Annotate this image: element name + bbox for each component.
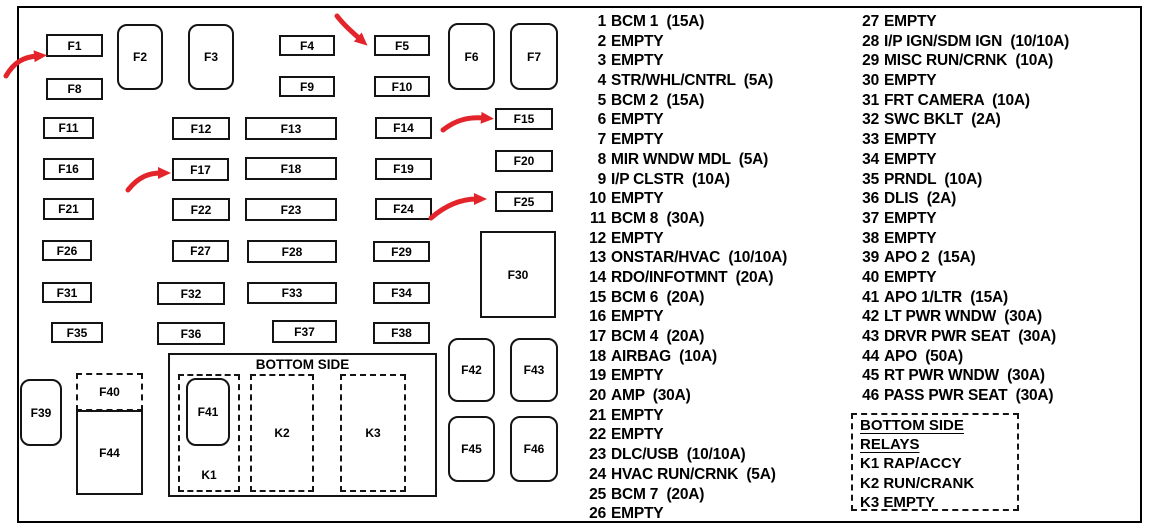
fuse-label: F24 [393,202,414,216]
legend-item-text: EMPTY [611,504,663,524]
fuse-label: F32 [181,287,202,301]
fuse-box-f26: F26 [42,240,92,261]
legend-item-number: 8 [584,150,606,170]
legend-item-text: EMPTY [884,209,936,229]
fuse-box-f45: F45 [448,416,495,482]
fuse-label: F5 [395,39,409,53]
legend-item: 8MIR WNDW MDL (5A) [584,150,787,170]
legend-item: 27EMPTY [854,12,1069,32]
fuse-box-f4: F4 [279,35,335,56]
fuse-box-f33: F33 [247,282,337,304]
fuse-box-f17: F17 [172,158,229,181]
legend-item-number: 7 [584,130,606,150]
fuse-box-f15: F15 [495,108,553,130]
legend-item-text: DRVR PWR SEAT (30A) [884,327,1056,347]
legend-item-text: DLIS (2A) [884,189,956,209]
legend-item-number: 29 [854,51,879,71]
legend-item-text: APO (50A) [884,347,963,367]
fuse-label: F33 [282,286,303,300]
legend-item-text: EMPTY [611,307,663,327]
legend-item-number: 43 [854,327,879,347]
legend-item-text: AIRBAG (10A) [611,347,717,367]
legend-item-text: EMPTY [884,268,936,288]
legend-item-number: 1 [584,12,606,32]
legend-item: 29MISC RUN/CRNK (10A) [854,51,1069,71]
fuse-label: F1 [67,39,81,53]
fuse-box-f18: F18 [245,157,337,180]
fuse-label: F21 [58,202,79,216]
legend-item-number: 18 [584,347,606,367]
legend-item-text: LT PWR WNDW (30A) [884,307,1042,327]
legend-item-text: PASS PWR SEAT (30A) [884,386,1053,406]
fuse-box-f7: F7 [510,23,558,90]
legend-item-number: 27 [854,12,879,32]
legend-item-text: EMPTY [611,189,663,209]
legend-item-number: 20 [584,386,606,406]
relay-legend-box: BOTTOM SIDERELAYSK1 RAP/ACCYK2 RUN/CRANK… [851,413,1019,511]
legend-item-number: 9 [584,170,606,190]
legend-item-number: 33 [854,130,879,150]
legend-item-number: 42 [854,307,879,327]
fuse-label: F9 [300,80,314,94]
legend-item-text: EMPTY [611,110,663,130]
fuse-label: F37 [294,325,315,339]
legend-item: 38EMPTY [854,229,1069,249]
legend-item-number: 6 [584,110,606,130]
legend-item-text: EMPTY [611,32,663,52]
legend-item-number: 40 [854,268,879,288]
legend-item: 13ONSTAR/HVAC (10/10A) [584,248,787,268]
legend-item-text: PRNDL (10A) [884,170,982,190]
legend-item: 18AIRBAG (10A) [584,347,787,367]
fuse-label: F43 [524,363,545,377]
legend-item-text: EMPTY [611,130,663,150]
fuse-box-f46: F46 [510,416,558,482]
fuse-box-f39: F39 [20,379,62,446]
legend-item-text: APO 1/LTR (15A) [884,288,1008,308]
legend-item-text: ONSTAR/HVAC (10/10A) [611,248,787,268]
legend-item: 12EMPTY [584,229,787,249]
relay-box-title: RELAYS [860,435,1017,454]
legend-item-text: SWC BKLT (2A) [884,110,1001,130]
relay-box-k3: K3 [340,374,406,492]
fuse-box-f20: F20 [495,150,553,172]
fuse-label: F36 [181,327,202,341]
legend-item: 45RT PWR WNDW (30A) [854,366,1069,386]
fuse-box-f16: F16 [43,158,94,180]
fuse-label: F44 [99,446,120,460]
legend-item-number: 16 [584,307,606,327]
fuse-box-f2: F2 [117,24,163,90]
legend-item: 42LT PWR WNDW (30A) [854,307,1069,327]
fuse-box-f9: F9 [279,76,335,97]
fuse-label: F27 [190,244,211,258]
legend-item-number: 22 [584,425,606,445]
legend-item-text: I/P CLSTR (10A) [611,170,730,190]
legend-item-text: BCM 2 (15A) [611,91,704,111]
legend-item-text: MIR WNDW MDL (5A) [611,150,768,170]
fuse-box-f3: F3 [188,24,234,90]
legend-item-number: 45 [854,366,879,386]
legend-item-number: 4 [584,71,606,91]
fuse-label: F35 [67,326,88,340]
fuse-box-f31: F31 [42,282,92,303]
fuse-box-f32: F32 [157,282,225,305]
legend-item-text: BCM 8 (30A) [611,209,704,229]
legend-item-text: EMPTY [611,229,663,249]
fuse-box-f29: F29 [373,241,430,262]
legend-item: 33EMPTY [854,130,1069,150]
legend-item-text: RDO/INFOTMNT (20A) [611,268,773,288]
fuse-label: F6 [464,50,478,64]
legend-item-text: BCM 6 (20A) [611,288,704,308]
fuse-label: F8 [67,82,81,96]
fuse-label: F3 [204,50,218,64]
legend-item-text: STR/WHL/CNTRL (5A) [611,71,773,91]
legend-item: 26EMPTY [584,504,787,524]
fuse-box-f24: F24 [375,198,432,220]
legend-item-number: 23 [584,445,606,465]
legend-item-text: EMPTY [884,130,936,150]
legend-item-number: 39 [854,248,879,268]
legend-item: 9I/P CLSTR (10A) [584,170,787,190]
legend-item: 22EMPTY [584,425,787,445]
fuse-label: F29 [391,245,412,259]
relay-box-k2: K2 [250,374,314,492]
legend-item-number: 13 [584,248,606,268]
fuse-label: F45 [461,442,482,456]
legend-item: 16EMPTY [584,307,787,327]
fuse-box-f40: F40 [76,373,143,411]
fuse-box-f8: F8 [46,78,103,100]
legend-item-number: 2 [584,32,606,52]
fuse-label: F26 [57,244,78,258]
legend-item: 23DLC/USB (10/10A) [584,445,787,465]
fuse-label: F23 [281,203,302,217]
fuse-label: F42 [461,363,482,377]
fuse-box-f11: F11 [43,117,94,139]
fuse-label: F16 [58,162,79,176]
legend-item: 36DLIS (2A) [854,189,1069,209]
legend-item-number: 44 [854,347,879,367]
relay-box-item: K3 EMPTY [860,493,1017,512]
relay-box-item: K1 RAP/ACCY [860,454,1017,473]
relay-box-item: K2 RUN/CRANK [860,474,1017,493]
fuse-box-f27: F27 [172,240,229,262]
legend-item-number: 37 [854,209,879,229]
legend-item-number: 15 [584,288,606,308]
legend-item-number: 5 [584,91,606,111]
relay-box-title: BOTTOM SIDE [860,416,1017,435]
legend-item: 35PRNDL (10A) [854,170,1069,190]
legend-item-number: 12 [584,229,606,249]
legend-item: 34EMPTY [854,150,1069,170]
fuse-box-f35: F35 [51,322,103,343]
fuse-label: F10 [392,80,413,94]
fuse-label: F11 [58,121,78,135]
legend-item-text: EMPTY [884,229,936,249]
legend-item-number: 38 [854,229,879,249]
fuse-label: F14 [393,121,414,135]
legend-item: 43DRVR PWR SEAT (30A) [854,327,1069,347]
fuse-label: F13 [281,122,302,136]
relay-box-k1: K1 [178,374,240,492]
fuse-box-f42: F42 [448,338,495,402]
legend-item-text: BCM 7 (20A) [611,485,704,505]
legend-item: 11BCM 8 (30A) [584,209,787,229]
legend-item-number: 25 [584,485,606,505]
legend-item-text: RT PWR WNDW (30A) [884,366,1045,386]
fuse-box-f5: F5 [374,35,430,56]
fuse-box-f13: F13 [245,117,337,140]
fuse-label: F7 [527,50,541,64]
legend-item-number: 11 [584,209,606,229]
legend-item-number: 14 [584,268,606,288]
legend-item-text: EMPTY [884,71,936,91]
legend-item: 30EMPTY [854,71,1069,91]
fuse-label: K3 [365,426,380,440]
fuse-box-f23: F23 [245,198,337,221]
legend-item-text: I/P IGN/SDM IGN (10/10A) [884,32,1069,52]
legend-item: 21EMPTY [584,406,787,426]
legend-item-text: EMPTY [611,366,663,386]
legend-column-right: 27EMPTY28I/P IGN/SDM IGN (10/10A)29MISC … [854,12,1069,406]
legend-item: 24HVAC RUN/CRNK (5A) [584,465,787,485]
fuse-box-f38: F38 [373,322,430,344]
legend-item: 14RDO/INFOTMNT (20A) [584,268,787,288]
bottom-side-title: BOTTOM SIDE [170,357,435,372]
legend-item: 5BCM 2 (15A) [584,91,787,111]
legend-item: 3EMPTY [584,51,787,71]
legend-item-text: FRT CAMERA (10A) [884,91,1030,111]
fuse-box-f25: F25 [495,191,553,212]
legend-item: 10EMPTY [584,189,787,209]
fuse-label: F19 [393,162,414,176]
legend-item: 20AMP (30A) [584,386,787,406]
fuse-label: F18 [281,162,302,176]
legend-item: 31FRT CAMERA (10A) [854,91,1069,111]
legend-item-number: 10 [584,189,606,209]
legend-item-text: EMPTY [884,12,936,32]
legend-item-text: DLC/USB (10/10A) [611,445,745,465]
legend-item: 2EMPTY [584,32,787,52]
legend-item-text: BCM 4 (20A) [611,327,704,347]
legend-item-number: 34 [854,150,879,170]
fuse-label: K1 [201,468,216,482]
legend-item: 44APO (50A) [854,347,1069,367]
legend-item-text: EMPTY [611,406,663,426]
fuse-label: F38 [391,326,412,340]
fuse-box-f43: F43 [510,338,558,402]
fuse-label: F30 [508,268,529,282]
fuse-label: F22 [191,203,212,217]
legend-item: 32SWC BKLT (2A) [854,110,1069,130]
legend-item: 6EMPTY [584,110,787,130]
legend-item-number: 35 [854,170,879,190]
legend-item-number: 30 [854,71,879,91]
legend-item: 1BCM 1 (15A) [584,12,787,32]
fuse-box-f44: F44 [76,410,143,495]
legend-item: 19EMPTY [584,366,787,386]
fuse-box-f21: F21 [43,198,94,220]
legend-item-number: 3 [584,51,606,71]
legend-item: 46PASS PWR SEAT (30A) [854,386,1069,406]
legend-item: 28I/P IGN/SDM IGN (10/10A) [854,32,1069,52]
fuse-box-f19: F19 [375,158,432,180]
legend-item: 40EMPTY [854,268,1069,288]
fuse-label: F25 [514,195,535,209]
fuse-box-f12: F12 [172,117,230,140]
fuse-box-f6: F6 [448,23,495,90]
fuse-label: F17 [190,163,211,177]
legend-item-number: 41 [854,288,879,308]
fuse-label: F28 [282,245,303,259]
fuse-box-f30: F30 [480,231,556,318]
fuse-label: F4 [300,39,314,53]
legend-item: 37EMPTY [854,209,1069,229]
fuse-box-f14: F14 [375,117,432,139]
legend-item-number: 28 [854,32,879,52]
fuse-box-f28: F28 [247,240,337,263]
fuse-label: F20 [514,154,535,168]
fuse-box-f10: F10 [374,76,430,97]
legend-item-text: EMPTY [611,425,663,445]
legend-item-text: MISC RUN/CRNK (10A) [884,51,1053,71]
fuse-label: F46 [524,442,545,456]
legend-item-number: 17 [584,327,606,347]
legend-item-text: HVAC RUN/CRNK (5A) [611,465,776,485]
legend-item: 15BCM 6 (20A) [584,288,787,308]
fuse-label: F34 [391,286,412,300]
legend-item-text: AMP (30A) [611,386,691,406]
legend-item-text: BCM 1 (15A) [611,12,704,32]
legend-item: 4STR/WHL/CNTRL (5A) [584,71,787,91]
fuse-label: F12 [191,122,212,136]
fuse-box-f22: F22 [172,198,230,221]
legend-item-number: 24 [584,465,606,485]
fuse-box-f37: F37 [272,320,337,343]
legend-item-number: 32 [854,110,879,130]
legend-item: 41APO 1/LTR (15A) [854,288,1069,308]
fuse-label: K2 [274,426,289,440]
fuse-label: F39 [31,406,52,420]
legend-item-number: 31 [854,91,879,111]
fuse-label: F15 [514,112,535,126]
fuse-label: F31 [57,286,78,300]
fuse-box-f34: F34 [373,282,430,304]
legend-item-number: 19 [584,366,606,386]
legend-item-number: 21 [584,406,606,426]
legend-item-text: APO 2 (15A) [884,248,976,268]
legend-item-number: 36 [854,189,879,209]
legend-item-text: EMPTY [611,51,663,71]
legend-item: 39APO 2 (15A) [854,248,1069,268]
fuse-box-f36: F36 [157,322,225,345]
legend-item: 17BCM 4 (20A) [584,327,787,347]
fuse-label: F40 [99,385,120,399]
legend-item-number: 46 [854,386,879,406]
legend-item: 25BCM 7 (20A) [584,485,787,505]
legend-column-left: 1BCM 1 (15A)2EMPTY3EMPTY4STR/WHL/CNTRL (… [584,12,787,524]
fuse-label: F2 [133,50,147,64]
fuse-box-f1: F1 [46,34,103,57]
legend-item-text: EMPTY [884,150,936,170]
legend-item: 7EMPTY [584,130,787,150]
legend-item-number: 26 [584,504,606,524]
